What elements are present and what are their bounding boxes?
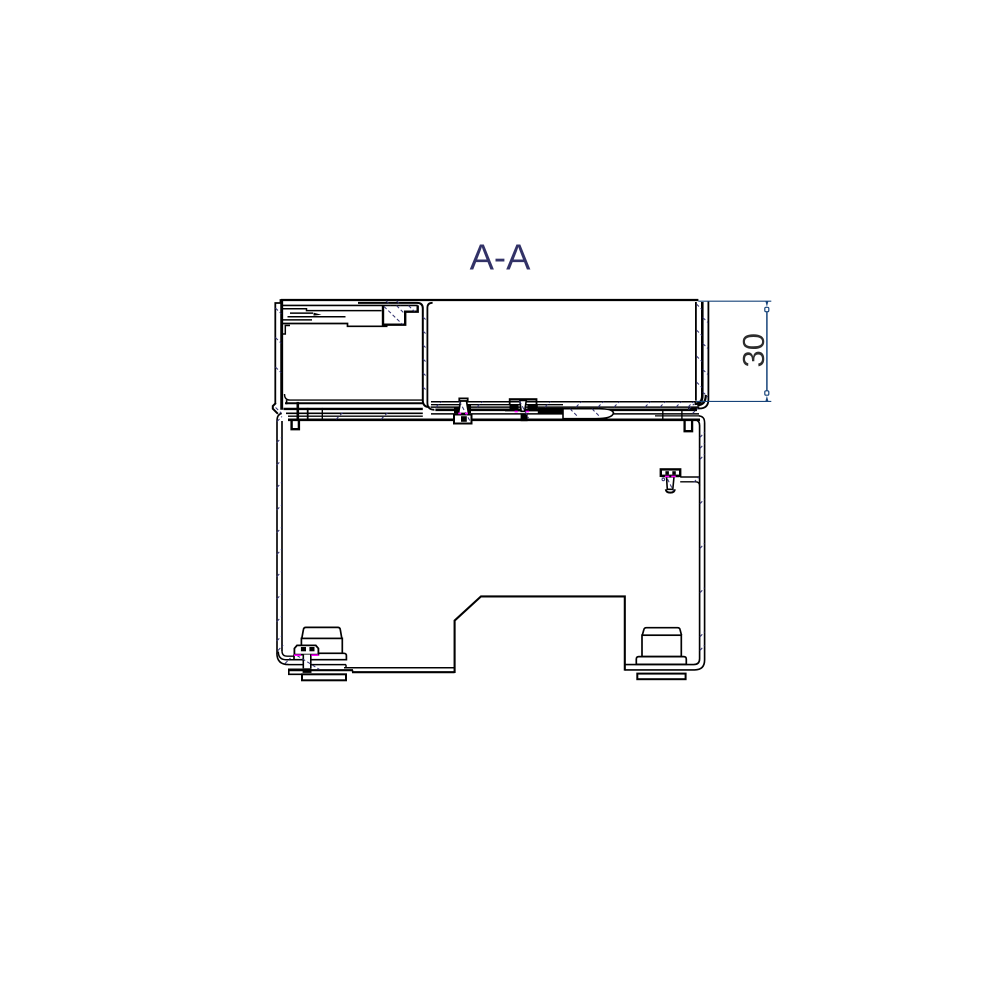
svg-text:30: 30	[736, 333, 771, 367]
svg-text:A-A: A-A	[470, 237, 532, 278]
